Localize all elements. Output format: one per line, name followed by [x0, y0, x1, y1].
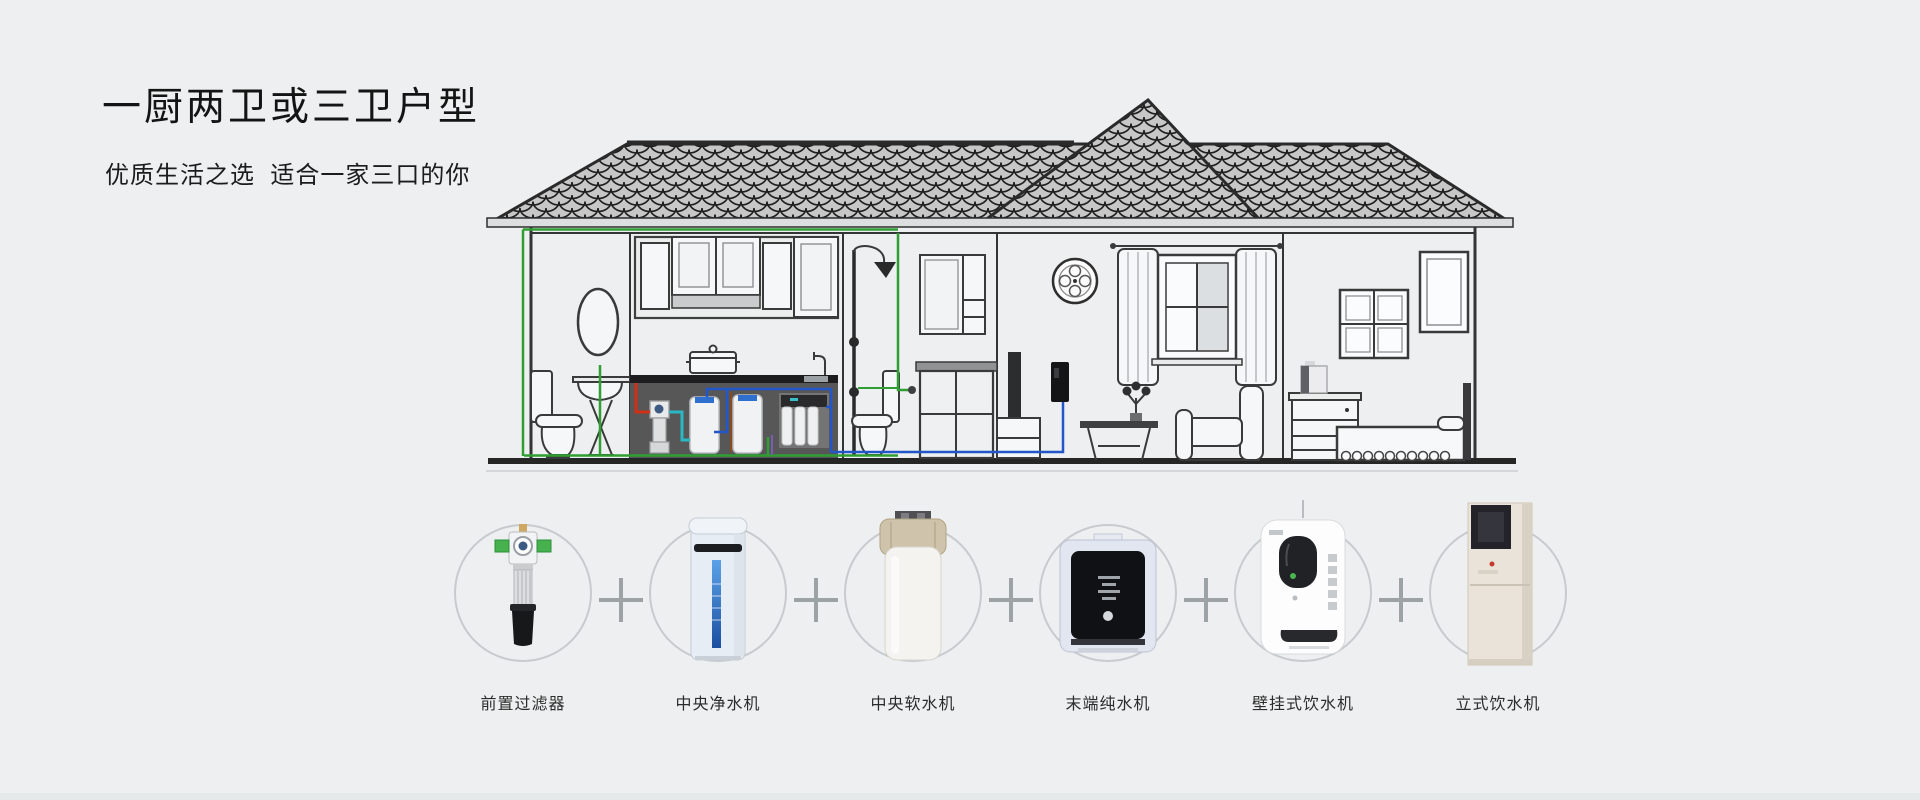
pre-filter-icon	[453, 484, 593, 684]
coffee-table-icon	[1080, 421, 1158, 460]
central-water-purifier-icon	[648, 484, 788, 684]
water-tank-icon	[733, 395, 762, 453]
toilet-icon	[531, 371, 582, 459]
plus-icon	[599, 578, 643, 622]
product-item-wall-dispenser[interactable]	[1233, 484, 1373, 684]
bedroom	[1289, 252, 1471, 461]
house-cross-section-illustration	[440, 70, 1560, 480]
cooking-pot-icon	[686, 346, 740, 374]
side-window-icon	[1420, 252, 1468, 332]
pedestal-sink-icon	[573, 377, 630, 455]
bathroom-2	[849, 246, 997, 458]
plus-icon	[1379, 578, 1423, 622]
wall-cabinet-icon	[920, 255, 985, 334]
product-item-terminal-purifier[interactable]	[1038, 484, 1178, 684]
toilet-icon	[852, 371, 899, 455]
product-item-central-purifier[interactable]	[648, 484, 788, 684]
kitchen-faucet-icon	[814, 352, 825, 377]
product-label: 壁挂式饮水机	[1203, 690, 1403, 714]
product-label: 立式饮水机	[1398, 690, 1598, 714]
ro-filter-unit-icon	[779, 393, 829, 448]
shower-cabin-icon	[916, 362, 997, 458]
section-divider	[0, 793, 1920, 800]
terminal-pure-water-machine-icon	[1038, 484, 1178, 684]
living-room	[997, 243, 1283, 460]
plus-icon	[794, 578, 838, 622]
sofa-icon	[1176, 386, 1263, 460]
product-label: 中央软水机	[813, 690, 1013, 714]
water-tank-icon	[690, 397, 719, 453]
wall-mounted-water-dispenser-icon	[1233, 484, 1373, 684]
plus-icon	[1184, 578, 1228, 622]
plant-icon	[1123, 382, 1151, 422]
product-item-standing-dispenser[interactable]	[1428, 484, 1568, 684]
product-label: 中央净水机	[618, 690, 818, 714]
plus-icon	[989, 578, 1033, 622]
kitchen	[630, 237, 838, 458]
central-water-softener-icon	[843, 484, 983, 684]
standing-water-dispenser-icon	[1428, 484, 1568, 684]
product-item-central-softener[interactable]	[843, 484, 983, 684]
roof-icon	[487, 100, 1513, 227]
bathroom-1	[531, 289, 630, 459]
wall-water-dispenser-icon	[1051, 362, 1069, 402]
product-label: 末端纯水机	[1008, 690, 1208, 714]
tabletop-dispenser-icon	[1301, 361, 1327, 393]
page-title: 一厨两卫或三卫户型	[102, 76, 480, 132]
product-item-pre-filter[interactable]	[453, 484, 593, 684]
mirror-icon	[578, 289, 618, 355]
product-label: 前置过滤器	[423, 690, 623, 714]
upper-cabinets-icon	[635, 237, 838, 318]
water-system-banner: 一厨两卫或三卫户型 优质生活之选 适合一家三口的你	[0, 0, 1920, 800]
wall-clock-icon	[1053, 259, 1097, 303]
window-with-curtains-icon	[1110, 243, 1283, 385]
page-subtitle: 优质生活之选 适合一家三口的你	[105, 155, 470, 190]
four-pane-window-icon	[1340, 290, 1408, 358]
tv-icon	[1008, 352, 1021, 418]
